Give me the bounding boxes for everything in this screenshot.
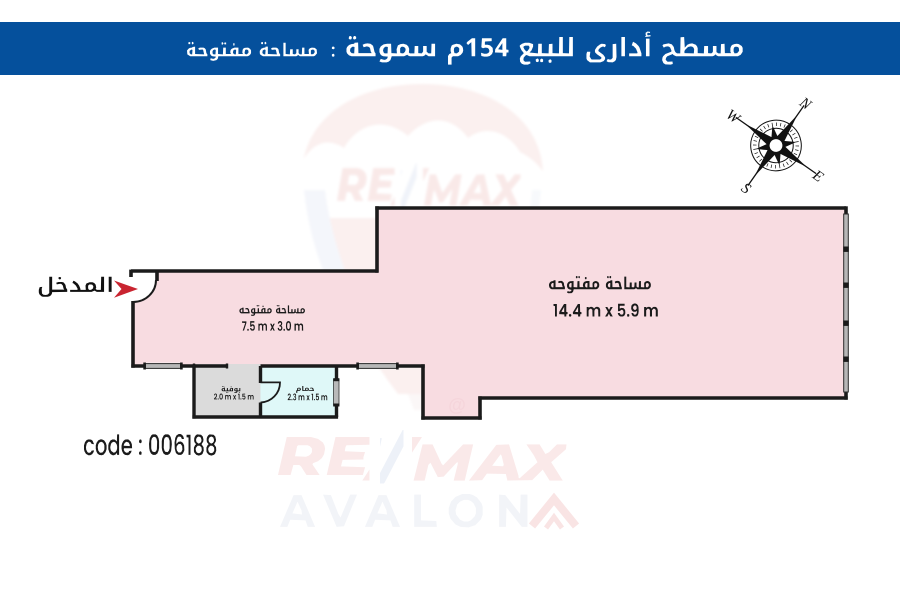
svg-text:S: S	[738, 180, 754, 198]
svg-text:W: W	[723, 107, 744, 128]
svg-text:@: @	[448, 395, 466, 415]
svg-text:N: N	[795, 94, 814, 114]
